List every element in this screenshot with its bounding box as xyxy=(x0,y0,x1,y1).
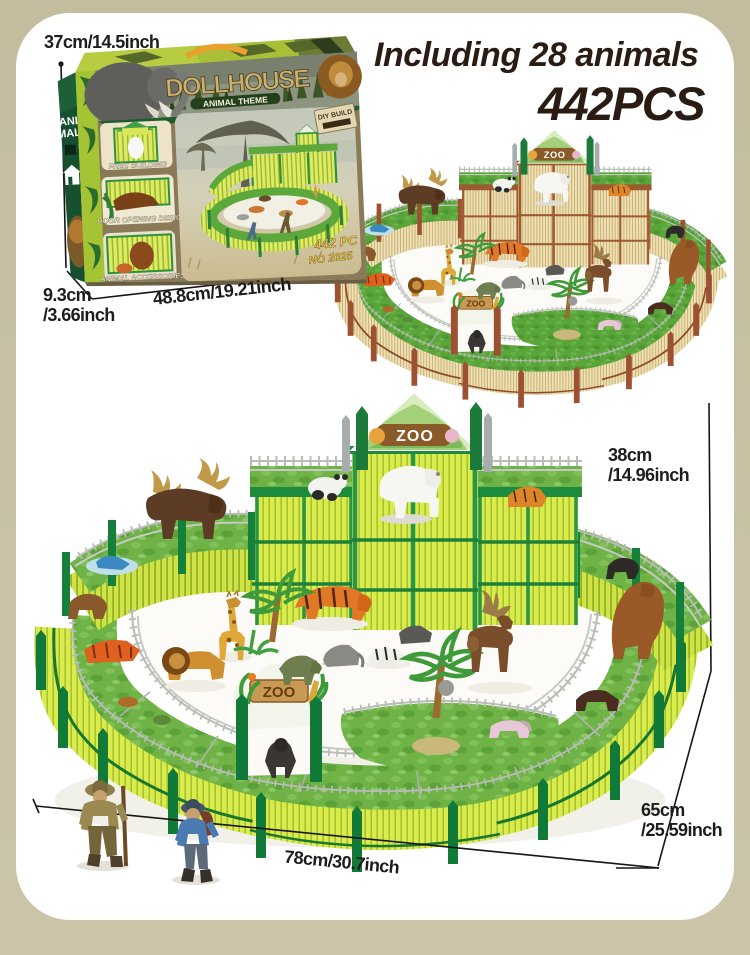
svg-text:ZOO: ZOO xyxy=(396,428,434,445)
svg-text:ZOO: ZOO xyxy=(544,150,566,160)
svg-text:ZOO: ZOO xyxy=(263,684,296,701)
svg-text:ZOO: ZOO xyxy=(466,298,485,308)
